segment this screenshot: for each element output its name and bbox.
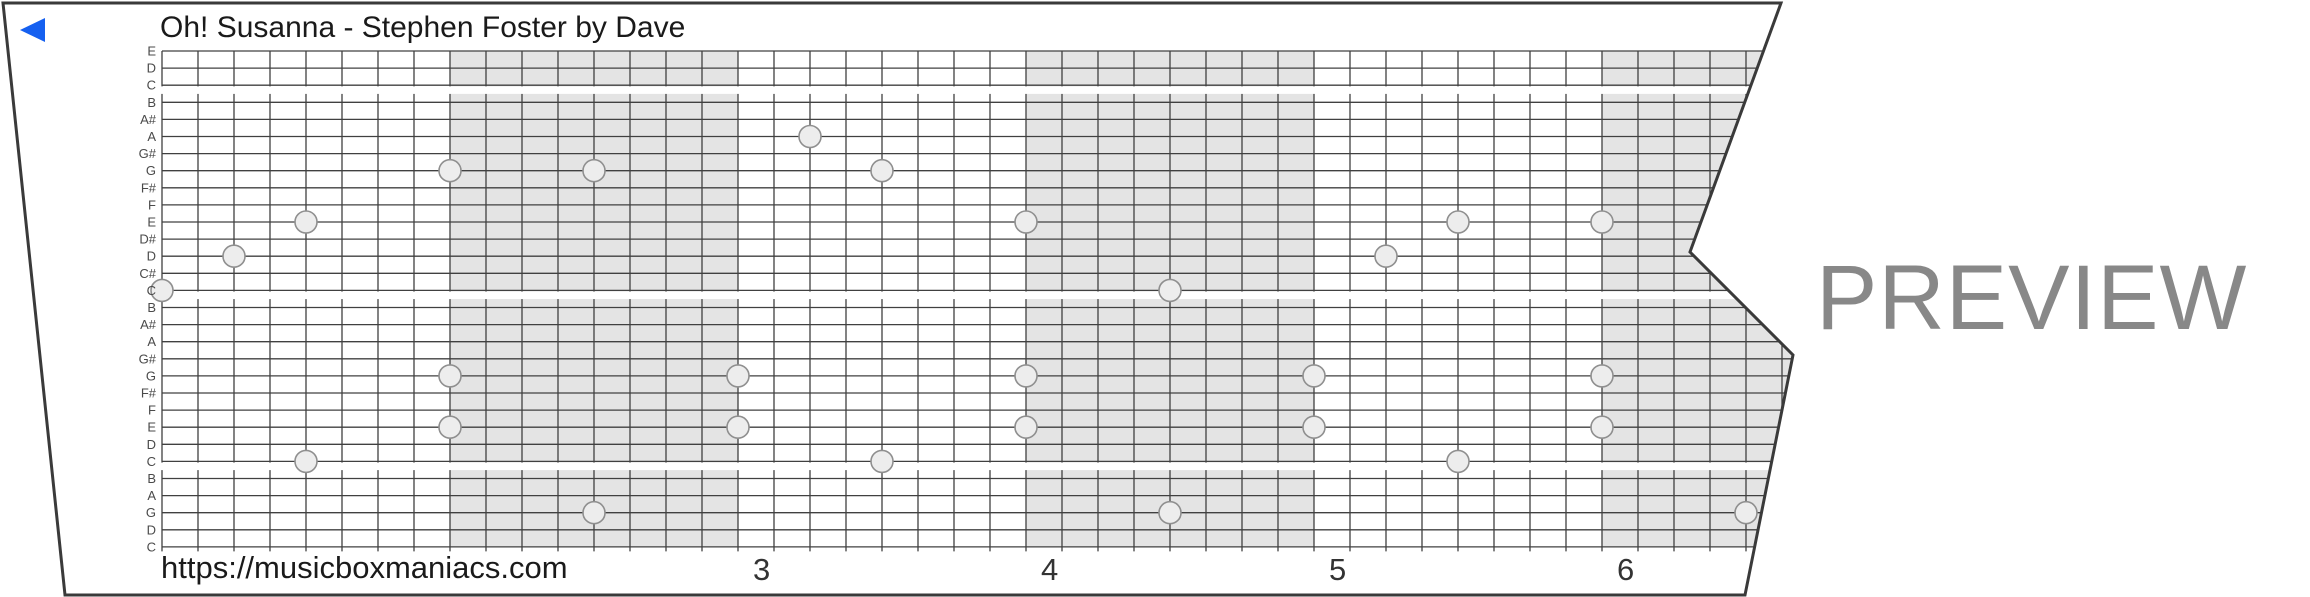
note-label: C	[147, 78, 156, 93]
note-hole-d	[1375, 245, 1397, 267]
note-hole-g	[1735, 502, 1757, 524]
note-hole-g	[1159, 502, 1181, 524]
octave-break-band	[161, 86, 1891, 94]
note-hole-e	[1447, 211, 1469, 233]
music-box-strip-preview: EDCBA#AG#GF#FED#DC#CBA#AG#GF#FEDCBAGDC O…	[0, 0, 2310, 597]
note-label: A	[147, 334, 156, 349]
note-label: D#	[139, 232, 156, 247]
note-label: C#	[139, 266, 156, 281]
note-hole-c	[1447, 450, 1469, 472]
octave-break-band	[161, 292, 1891, 300]
note-label: G#	[139, 351, 157, 366]
measure-number: 4	[1041, 552, 1058, 588]
note-label: C	[147, 539, 156, 554]
note-label: A	[147, 488, 156, 503]
note-hole-e	[439, 416, 461, 438]
note-hole-e	[1591, 211, 1613, 233]
note-label: E	[147, 44, 156, 59]
measure-number: 5	[1329, 552, 1346, 588]
note-hole-g	[583, 160, 605, 182]
note-label: F	[148, 197, 156, 212]
note-label: A#	[140, 112, 157, 127]
note-label: B	[147, 471, 156, 486]
note-label: F#	[141, 180, 157, 195]
note-hole-c	[295, 450, 317, 472]
note-label: D	[147, 437, 156, 452]
note-label: C	[147, 283, 156, 298]
note-label: D	[147, 61, 156, 76]
note-hole-g	[727, 365, 749, 387]
note-hole-g	[439, 365, 461, 387]
note-hole-g	[583, 502, 605, 524]
note-label: B	[147, 300, 156, 315]
note-label: G	[146, 163, 156, 178]
note-hole-g	[1015, 365, 1037, 387]
note-label: C	[147, 454, 156, 469]
measure-number: 3	[753, 552, 770, 588]
note-hole-g	[1591, 365, 1613, 387]
note-hole-c	[1159, 279, 1181, 301]
note-label: F#	[141, 386, 157, 401]
note-hole-e	[1303, 416, 1325, 438]
note-hole-a	[799, 126, 821, 148]
note-hole-d	[223, 245, 245, 267]
note-label: D	[147, 249, 156, 264]
note-hole-e	[727, 416, 749, 438]
measure-number: 6	[1617, 552, 1634, 588]
note-label: A#	[140, 317, 157, 332]
note-hole-g	[871, 160, 893, 182]
octave-break-band	[161, 463, 1891, 471]
site-url-text: https://musicboxmaniacs.com	[161, 550, 568, 586]
note-hole-e	[295, 211, 317, 233]
note-label: F	[148, 403, 156, 418]
preview-watermark: PREVIEW	[1816, 246, 2247, 351]
note-hole-e	[1591, 416, 1613, 438]
note-label: G#	[139, 146, 157, 161]
note-hole-e	[1015, 211, 1037, 233]
melody-title: Oh! Susanna - Stephen Foster by Dave	[160, 11, 685, 45]
note-label: D	[147, 522, 156, 537]
note-hole-e	[1015, 416, 1037, 438]
left-triangle-icon	[20, 18, 45, 42]
note-label: E	[147, 420, 156, 435]
note-label: B	[147, 95, 156, 110]
note-label: E	[147, 215, 156, 230]
note-hole-c	[871, 450, 893, 472]
strip-direction-arrow-icon	[20, 18, 45, 42]
note-hole-g	[439, 160, 461, 182]
note-label: G	[146, 368, 156, 383]
note-label: A	[147, 129, 156, 144]
note-label: G	[146, 505, 156, 520]
note-hole-g	[1303, 365, 1325, 387]
